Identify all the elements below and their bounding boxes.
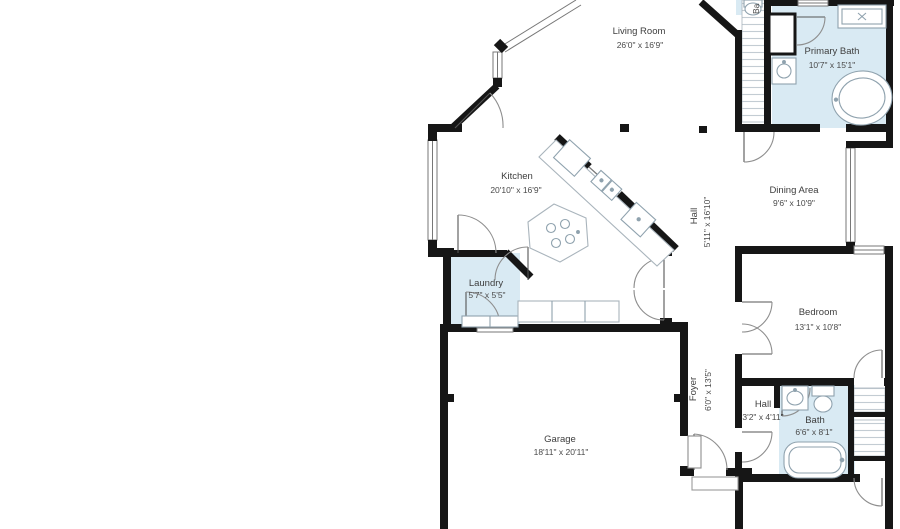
dims-dining-area: 9'6" x 10'9" — [773, 198, 815, 208]
dims-foyer: 6'0" x 13'5" — [703, 369, 713, 411]
label-clipped-top: Ba — [751, 3, 761, 14]
bath-toilet — [812, 386, 834, 412]
dims-living-room: 26'0" x 16'9" — [617, 40, 664, 50]
door-hall-lower — [742, 432, 772, 462]
hall-closet-b — [854, 420, 885, 456]
door-pantry-bottom — [634, 290, 664, 320]
label-bedroom: Bedroom — [799, 307, 838, 318]
label-hall-upper: Hall — [689, 208, 700, 224]
dims-primary-bath: 10'7" x 15'1" — [809, 60, 856, 70]
floor-plan: Living Room 26'0" x 16'9" Primary Bath 1… — [0, 0, 900, 529]
dims-hall-lower: 3'2" x 4'11" — [742, 412, 783, 422]
diag-wall-primary — [701, 2, 739, 36]
diag-wall-living — [452, 86, 497, 128]
door-primary-suite — [744, 132, 774, 162]
wall-cap — [497, 42, 505, 50]
bathtub — [784, 442, 846, 478]
label-bath: Bath — [805, 415, 825, 426]
primary-vanity — [838, 5, 886, 28]
dims-laundry: 5'7" x 5'5" — [468, 290, 505, 300]
door-bedroom-entry — [854, 350, 882, 378]
bay-rail-line-2 — [505, 5, 581, 52]
kitchen-cabinets — [518, 301, 619, 322]
dims-bedroom: 13'1" x 10'8" — [795, 322, 842, 332]
bath-sink — [782, 386, 808, 410]
bay-rail-line-1 — [500, 0, 576, 47]
label-dining-area: Dining Area — [769, 185, 819, 196]
dims-kitchen: 20'10" x 16'9" — [490, 185, 541, 195]
door-bedroom-closet-bottom — [742, 324, 772, 354]
label-primary-bath: Primary Bath — [805, 46, 860, 57]
label-laundry: Laundry — [469, 278, 504, 289]
porch-stoop — [692, 477, 738, 490]
label-foyer: Foyer — [688, 377, 699, 401]
label-living-room: Living Room — [613, 26, 666, 37]
dims-garage: 18'11" x 20'11" — [534, 447, 589, 457]
kitchen-island — [528, 204, 588, 262]
dims-bath: 6'6" x 8'1" — [795, 427, 832, 437]
door-kitchen-a — [458, 215, 496, 253]
label-kitchen: Kitchen — [501, 171, 533, 182]
washer-dryer — [462, 316, 518, 327]
door-rear-room — [854, 478, 882, 506]
primary-closet — [742, 0, 765, 122]
hall-closet-a — [854, 388, 885, 412]
dims-hall-upper: 5'11" x 16'10" — [702, 197, 712, 248]
laundry-floor — [448, 253, 520, 325]
linen-closet — [769, 14, 795, 54]
label-hall-lower: Hall — [755, 399, 771, 410]
primary-sink — [772, 58, 796, 84]
entry-step — [688, 436, 701, 468]
label-garage: Garage — [544, 434, 576, 445]
floorplan-page: Living Room 26'0" x 16'9" Primary Bath 1… — [0, 0, 900, 529]
